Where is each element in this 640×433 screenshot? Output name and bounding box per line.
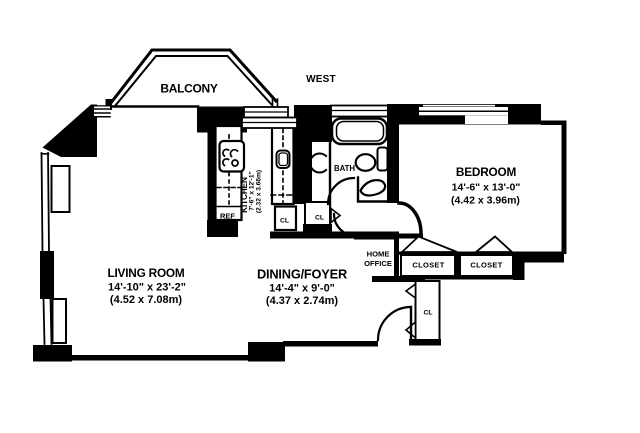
svg-text:CLOSET: CLOSET	[412, 261, 444, 270]
svg-text:14'-10" x 23'-2": 14'-10" x 23'-2"	[108, 282, 186, 294]
svg-text:(4.37 x 2.74m): (4.37 x 2.74m)	[266, 295, 338, 307]
svg-text:(4.42 x 3.96m): (4.42 x 3.96m)	[451, 195, 520, 207]
svg-text:(4.52 x 7.08m): (4.52 x 7.08m)	[110, 294, 182, 306]
svg-text:CL: CL	[280, 218, 289, 225]
svg-text:14'-4" x 9'-0": 14'-4" x 9'-0"	[269, 283, 335, 295]
svg-text:HOME: HOME	[367, 250, 390, 259]
svg-text:CL: CL	[423, 310, 432, 317]
svg-text:CL: CL	[315, 215, 324, 222]
svg-text:14'-6" x 13'-0": 14'-6" x 13'-0"	[452, 182, 521, 194]
svg-text:BATH: BATH	[334, 164, 355, 173]
svg-text:OFFICE: OFFICE	[364, 259, 392, 268]
svg-text:7'-6" x 12'-1": 7'-6" x 12'-1"	[249, 171, 256, 210]
svg-text:DINING/FOYER: DINING/FOYER	[257, 267, 347, 282]
svg-text:CLOSET: CLOSET	[470, 261, 502, 270]
svg-text:WEST: WEST	[306, 74, 336, 85]
svg-text:BEDROOM: BEDROOM	[456, 165, 517, 179]
svg-text:REF: REF	[220, 212, 235, 221]
svg-text:(2.32 x 3.66m): (2.32 x 3.66m)	[256, 170, 263, 213]
svg-text:LIVING ROOM: LIVING ROOM	[107, 266, 184, 280]
svg-text:BALCONY: BALCONY	[160, 82, 218, 96]
